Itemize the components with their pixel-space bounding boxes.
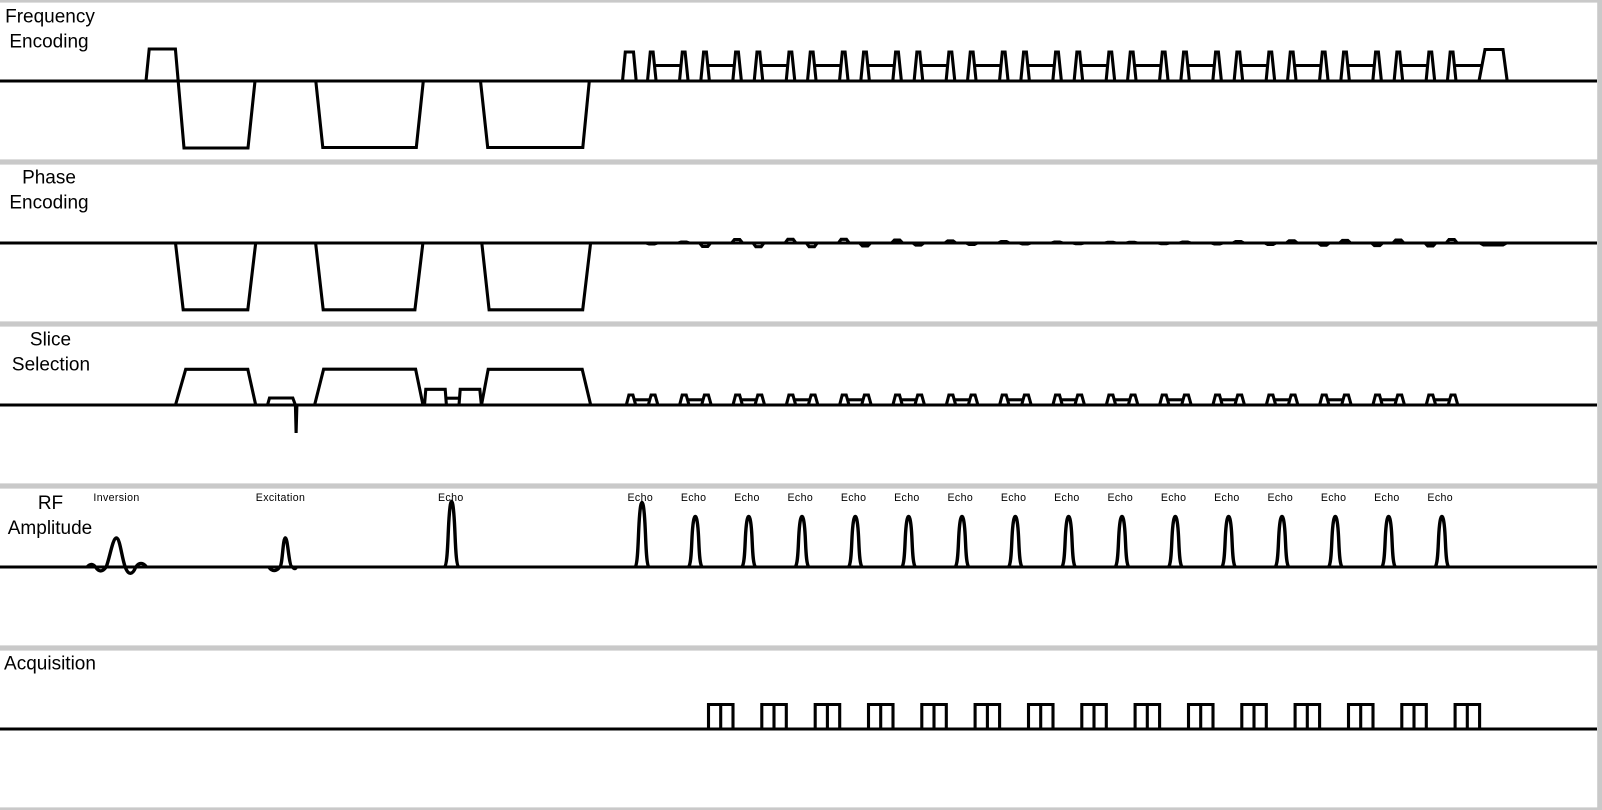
svg-text:Encoding: Encoding	[9, 31, 88, 52]
svg-text:Echo: Echo	[1108, 492, 1134, 504]
svg-text:Echo: Echo	[788, 492, 814, 504]
svg-text:Inversion: Inversion	[93, 492, 139, 504]
svg-text:Amplitude: Amplitude	[8, 518, 93, 539]
svg-text:Echo: Echo	[1374, 492, 1400, 504]
svg-text:Echo: Echo	[681, 492, 707, 504]
svg-text:Echo: Echo	[841, 492, 867, 504]
svg-text:Echo: Echo	[734, 492, 760, 504]
svg-text:Echo: Echo	[1427, 492, 1453, 504]
svg-text:Phase: Phase	[22, 168, 76, 189]
svg-text:Echo: Echo	[894, 492, 920, 504]
svg-text:Echo: Echo	[628, 492, 654, 504]
svg-text:Echo: Echo	[1214, 492, 1240, 504]
svg-text:Excitation: Excitation	[256, 492, 305, 504]
svg-text:Acquisition: Acquisition	[4, 654, 96, 675]
svg-text:Echo: Echo	[1054, 492, 1080, 504]
svg-text:Echo: Echo	[1268, 492, 1294, 504]
svg-text:RF: RF	[38, 493, 63, 514]
svg-text:Encoding: Encoding	[9, 192, 88, 213]
svg-text:Frequency: Frequency	[5, 7, 95, 28]
svg-text:Echo: Echo	[948, 492, 974, 504]
svg-text:Echo: Echo	[1001, 492, 1027, 504]
svg-text:Echo: Echo	[1321, 492, 1347, 504]
svg-text:Slice: Slice	[30, 330, 71, 351]
svg-text:Selection: Selection	[12, 354, 90, 375]
svg-text:Echo: Echo	[1161, 492, 1187, 504]
